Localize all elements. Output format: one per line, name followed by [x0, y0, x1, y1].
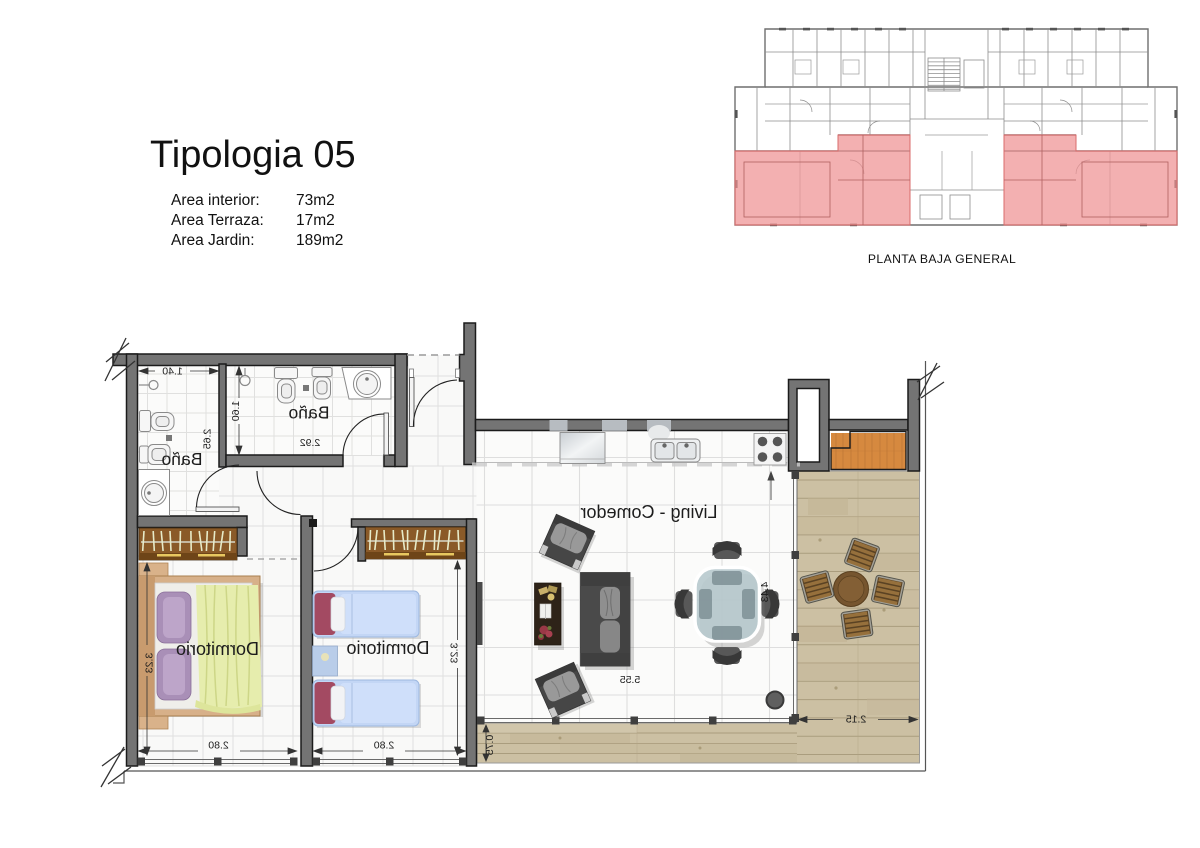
- svg-text:Area Jardin:: Area Jardin:: [171, 232, 255, 249]
- svg-text:Dormitorio: Dormitorio: [346, 638, 429, 658]
- svg-text:1.40: 1.40: [162, 366, 183, 378]
- svg-text:Baño: Baño: [289, 403, 330, 423]
- svg-text:2.92: 2.92: [300, 437, 321, 449]
- svg-text:PLANTA BAJA GENERAL: PLANTA BAJA GENERAL: [868, 252, 1016, 266]
- svg-text:Living - Comedor: Living - Comedor: [580, 502, 717, 522]
- svg-text:Dormitorio: Dormitorio: [176, 639, 259, 659]
- svg-text:17m2: 17m2: [296, 212, 335, 229]
- svg-text:0.75: 0.75: [484, 735, 496, 756]
- svg-text:2.80: 2.80: [374, 740, 395, 752]
- svg-text:3.23: 3.23: [449, 643, 461, 664]
- svg-text:Area Terraza:: Area Terraza:: [171, 212, 264, 229]
- svg-text:73m2: 73m2: [296, 192, 335, 209]
- svg-text:189m2: 189m2: [296, 232, 343, 249]
- svg-text:3.23: 3.23: [144, 653, 156, 674]
- svg-text:Baño: Baño: [162, 449, 203, 469]
- svg-text:Tipologia 05: Tipologia 05: [150, 134, 356, 176]
- svg-text:2.65: 2.65: [202, 429, 214, 450]
- svg-text:1.60: 1.60: [230, 401, 242, 422]
- svg-text:5.55: 5.55: [620, 674, 641, 686]
- svg-text:2.15: 2.15: [846, 714, 867, 726]
- svg-text:Area interior:: Area interior:: [171, 192, 260, 209]
- svg-text:2.80: 2.80: [208, 740, 229, 752]
- svg-text:4.43: 4.43: [759, 582, 771, 603]
